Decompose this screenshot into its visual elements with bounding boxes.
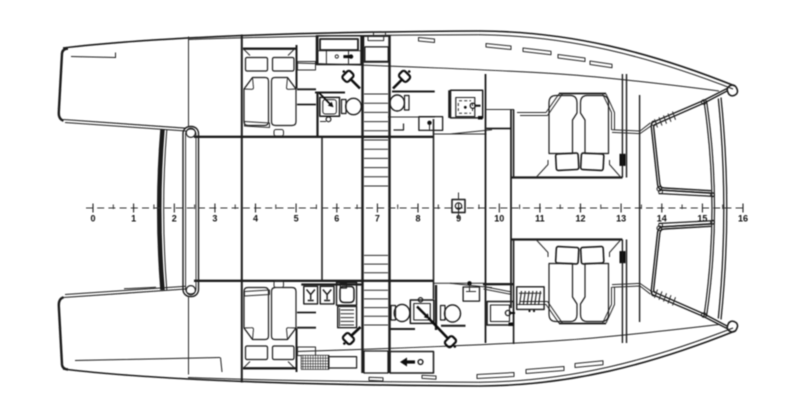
- svg-text:12: 12: [575, 214, 585, 224]
- svg-text:13: 13: [616, 214, 626, 224]
- svg-text:6: 6: [334, 214, 339, 224]
- svg-text:1: 1: [131, 214, 136, 224]
- svg-text:11: 11: [535, 214, 545, 224]
- svg-text:2: 2: [172, 214, 177, 224]
- svg-text:7: 7: [375, 214, 380, 224]
- svg-text:14: 14: [657, 214, 667, 224]
- svg-text:10: 10: [494, 214, 504, 224]
- svg-text:5: 5: [294, 214, 299, 224]
- svg-text:8: 8: [415, 214, 420, 224]
- svg-text:16: 16: [738, 214, 748, 224]
- svg-text:3: 3: [212, 214, 217, 224]
- svg-text:0: 0: [90, 214, 95, 224]
- svg-text:4: 4: [253, 214, 258, 224]
